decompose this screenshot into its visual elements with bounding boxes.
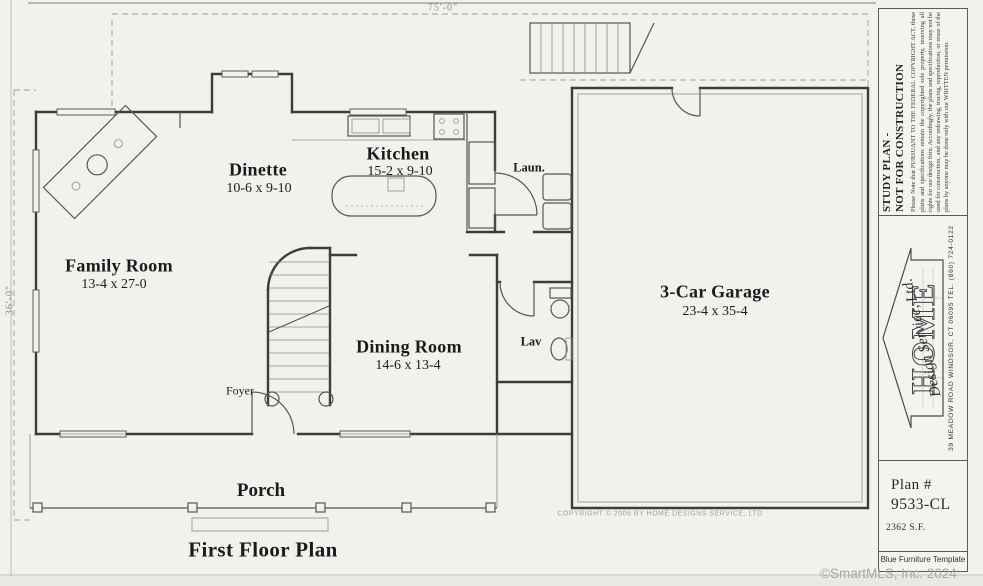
laundry-appliances — [543, 174, 571, 229]
plan-area: 2362 S.F. — [886, 523, 967, 533]
dinette-size: 10-6 x 9-10 — [226, 181, 291, 197]
dinette-label: Dinette — [229, 160, 287, 181]
study-plan-disclaimer: Please Note that PURSUANT TO THE FEDERAL… — [910, 12, 951, 212]
study-plan-heading-1: STUDY PLAN - — [881, 12, 894, 212]
garage-size: 23-4 x 35-4 — [682, 304, 747, 320]
kitchen-size: 15-2 x 9-10 — [367, 164, 432, 180]
garage-label: 3-Car Garage — [660, 282, 770, 303]
firm-address: 39 MEADOW ROAD WINDSOR, CT 06095 TEL. (8… — [948, 219, 955, 457]
width-dimension: 75'-0" — [428, 3, 458, 14]
fireplace — [43, 105, 156, 218]
kitchen-label: Kitchen — [366, 144, 429, 165]
smartmls-watermark: ©SmartMLS, Inc. 2024 — [820, 566, 957, 581]
plan-number-label: Plan # — [891, 477, 967, 494]
plan-number-section: Plan # 9533-CL 2362 S.F. — [879, 461, 967, 552]
family-room-size: 13-4 x 27-0 — [81, 277, 146, 293]
floor-plan-drawing — [0, 0, 983, 586]
dining-room-label: Dining Room — [356, 337, 462, 358]
height-dimension: 36'-0" — [5, 285, 16, 315]
copyright-line: COPYRIGHT © 2006 BY HOME DESIGNS SERVICE… — [557, 511, 762, 518]
lav-label: Lav — [521, 335, 542, 350]
deck-stairs — [530, 23, 654, 73]
foyer-label: Foyer — [226, 384, 254, 399]
laundry-label: Laun. — [513, 161, 545, 176]
study-plan-section: STUDY PLAN - NOT FOR CONSTRUCTION Please… — [879, 9, 967, 216]
home-design-service-logo: HOME Design Service, Ltd. — [881, 238, 945, 438]
lav-fixtures — [550, 288, 572, 360]
porch-label: Porch — [237, 480, 285, 502]
staircase — [265, 248, 333, 406]
dining-room-size: 14-6 x 13-4 — [375, 358, 440, 374]
study-plan-heading-2: NOT FOR CONSTRUCTION — [894, 12, 907, 212]
firm-logo-section: HOME Design Service, Ltd. 39 MEADOW ROAD… — [879, 216, 967, 461]
family-room-label: Family Room — [65, 256, 173, 277]
title-block: STUDY PLAN - NOT FOR CONSTRUCTION Please… — [878, 8, 968, 572]
scanned-floor-plan-page: 75'-0" 36'-0" Family Room 13-4 x 27-0 Di… — [0, 0, 983, 586]
plan-number-value: 9533-CL — [891, 496, 967, 514]
plan-title: First Floor Plan — [188, 538, 338, 563]
